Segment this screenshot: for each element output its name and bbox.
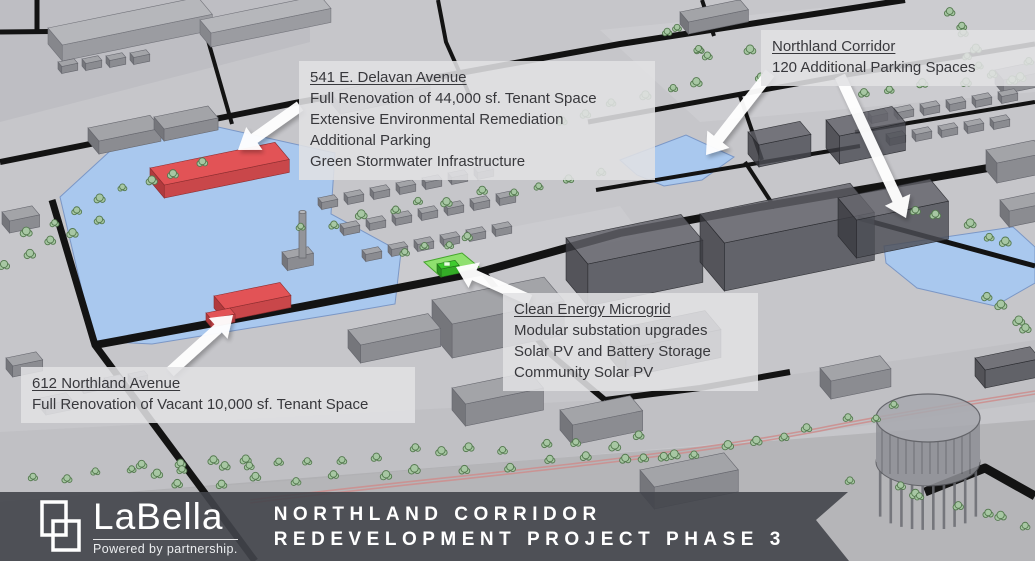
callout-line: Green Stormwater Infrastructure — [310, 151, 644, 172]
callout-line: Solar PV and Battery Storage — [514, 341, 747, 362]
callout-title: Clean Energy Microgrid — [514, 299, 747, 320]
brand-name: LaBella — [93, 498, 238, 535]
project-title-line2: REDEVELOPMENT PROJECT PHASE 3 — [274, 527, 786, 552]
callout-line: Full Renovation of 44,000 sf. Tenant Spa… — [310, 88, 644, 109]
callout-line: 120 Additional Parking Spaces — [772, 57, 1024, 78]
callout-line: Additional Parking — [310, 130, 644, 151]
callout-title: 612 Northland Avenue — [32, 373, 404, 394]
labella-logo-icon — [40, 500, 82, 554]
project-title: NORTHLAND CORRIDOR REDEVELOPMENT PROJECT… — [274, 502, 786, 552]
callout-612-northland: 612 Northland Avenue Full Renovation of … — [21, 367, 415, 423]
labella-brand: LaBella Powered by partnership. — [40, 498, 238, 556]
project-title-line1: NORTHLAND CORRIDOR — [274, 502, 786, 527]
callout-title: 541 E. Delavan Avenue — [310, 67, 644, 88]
callout-line: Modular substation upgrades — [514, 320, 747, 341]
callout-northland-corridor: Northland Corridor 120 Additional Parkin… — [761, 30, 1035, 86]
project-rendering: 541 E. Delavan Avenue Full Renovation of… — [0, 0, 1035, 561]
callout-541-delavan: 541 E. Delavan Avenue Full Renovation of… — [299, 61, 655, 180]
callout-line: Full Renovation of Vacant 10,000 sf. Ten… — [32, 394, 404, 415]
callout-line: Community Solar PV — [514, 362, 747, 383]
callout-clean-energy-microgrid: Clean Energy Microgrid Modular substatio… — [503, 293, 758, 391]
footer-banner: LaBella Powered by partnership. NORTHLAN… — [0, 492, 852, 561]
callout-title: Northland Corridor — [772, 36, 1024, 57]
callout-line: Extensive Environmental Remediation — [310, 109, 644, 130]
brand-tagline: Powered by partnership. — [93, 539, 238, 556]
